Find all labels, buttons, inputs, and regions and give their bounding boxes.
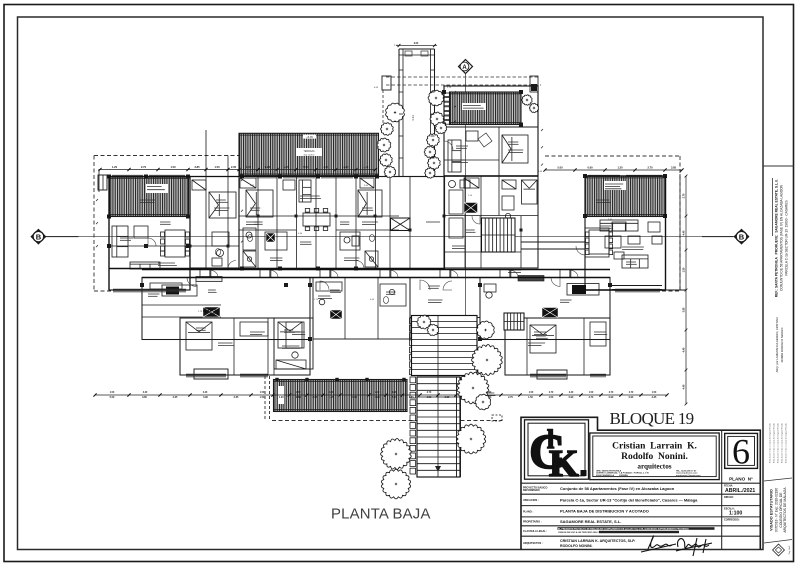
svg-text:REFORMADO:: REFORMADO: (523, 489, 540, 492)
svg-text:1.50: 1.50 (528, 396, 533, 399)
svg-text:1.50: 1.50 (468, 195, 473, 197)
svg-text:1.50: 1.50 (427, 396, 432, 399)
svg-text:Esta docum ento es copia del o: Esta docum ento es copia del original Vi… (777, 422, 780, 463)
svg-text:CORREGIDO:: CORREGIDO: (724, 518, 740, 521)
svg-text:A: A (462, 65, 467, 71)
svg-text:BLOQUE 19: BLOQUE 19 (610, 409, 694, 428)
svg-text:3.85: 3.85 (284, 165, 290, 169)
svg-text:Cristian Larrain K.: Cristian Larrain K. (612, 442, 697, 452)
svg-text:0.90: 0.90 (352, 396, 357, 399)
svg-text:arquitectos@larrain.com: arquitectos@larrain.com (676, 474, 701, 477)
svg-text:5.00: 5.00 (392, 396, 397, 399)
svg-text:3.85: 3.85 (409, 396, 414, 399)
svg-text:UBICACION :: UBICACION : (523, 499, 539, 502)
svg-text:+5.05: +5.05 (306, 135, 313, 139)
svg-text:1.20: 1.20 (617, 165, 623, 169)
svg-text:3.85: 3.85 (364, 185, 369, 187)
svg-text:2.70: 2.70 (141, 165, 147, 169)
svg-text:1.50: 1.50 (260, 392, 265, 394)
svg-text:2.35: 2.35 (231, 165, 237, 169)
svg-text:ABRIL./2021: ABRIL./2021 (725, 488, 755, 494)
svg-text:1.20: 1.20 (392, 392, 397, 394)
svg-text:SAGAMORE REAL ESTATE, S.L.: SAGAMORE REAL ESTATE, S.L. (560, 519, 621, 524)
svg-text:B: B (739, 232, 745, 241)
svg-text:2.70: 2.70 (447, 87, 452, 89)
svg-text:1.50: 1.50 (589, 392, 594, 394)
svg-text:1.50: 1.50 (214, 165, 220, 169)
svg-text:CONJUNTO DE 58 APARTAMENTOS (F: CONJUNTO DE 58 APARTAMENTOS (FASE IV) EN… (780, 184, 784, 291)
svg-text:K: K (549, 443, 579, 485)
svg-text:Sup 52.8m2: Sup 52.8m2 (304, 155, 316, 157)
svg-text:1.20: 1.20 (265, 165, 271, 169)
svg-text:4.40: 4.40 (323, 165, 329, 169)
svg-text:29680 MARBELLA ESPAÑA: 29680 MARBELLA ESPAÑA (596, 474, 628, 477)
svg-text:Conjunto de 58 Apartamentos (F: Conjunto de 58 Apartamentos (Fase IV) en… (560, 486, 675, 491)
svg-text:3.60: 3.60 (414, 43, 419, 45)
svg-text:4.40: 4.40 (143, 391, 148, 394)
svg-text:0.90: 0.90 (609, 396, 614, 399)
svg-text:4.40: 4.40 (569, 391, 574, 394)
svg-text:2.35: 2.35 (652, 396, 657, 399)
svg-text:1.20: 1.20 (279, 396, 284, 399)
svg-text:Esta docum ento es copia del o: Esta docum ento es copia del original Vi… (773, 422, 776, 463)
svg-text:4.40: 4.40 (203, 391, 208, 394)
svg-text:NONINI RODOLFO SERGIO: NONINI RODOLFO SERGIO (780, 328, 784, 363)
svg-text:1.50: 1.50 (260, 396, 265, 399)
svg-text:VISADO ESTATUTARIO: VISADO ESTATUTARIO (770, 489, 774, 531)
svg-text:CRISTIAN LARRAIN K. ARQUITECTO: CRISTIAN LARRAIN K. ARQUITECTOS, SLP. (560, 539, 635, 543)
svg-text:4.40: 4.40 (683, 230, 686, 235)
svg-text:4.40: 4.40 (683, 347, 686, 352)
svg-text:DIBUJO:: DIBUJO: (724, 496, 734, 499)
svg-text:0.90: 0.90 (246, 165, 252, 169)
svg-text:4.40: 4.40 (363, 165, 369, 169)
svg-text:Esta docum ento es copia del o: Esta docum ento es copia del original Vi… (785, 422, 788, 463)
svg-text:ARQUITECTOS DE MÁLAGA: ARQUITECTOS DE MÁLAGA (783, 487, 787, 533)
svg-text:1:100: 1:100 (729, 511, 742, 517)
svg-text:PLANO :: PLANO : (523, 510, 533, 513)
svg-text:3.85: 3.85 (343, 165, 349, 169)
svg-text:4.40: 4.40 (683, 384, 686, 389)
svg-text:5.00: 5.00 (110, 396, 115, 399)
svg-text:2.70: 2.70 (549, 392, 554, 394)
svg-text:2.70: 2.70 (508, 396, 513, 399)
svg-text:1.50: 1.50 (529, 392, 534, 394)
svg-text:Rodolfo Nonini.: Rodolfo Nonini. (621, 452, 688, 462)
svg-text:Pag 1de8: Pag 1de8 (789, 545, 791, 554)
svg-text:PLANTA BAJA: PLANTA BAJA (331, 507, 431, 523)
svg-text:1.50: 1.50 (296, 396, 301, 399)
svg-text:2.70: 2.70 (647, 165, 653, 169)
svg-text:2.35: 2.35 (445, 396, 450, 399)
svg-text:2.70: 2.70 (314, 299, 319, 301)
svg-text:REF.: SANTA PETRONILA PROMUE: REF.: SANTA PETRONILA PROMUEVE: SAGAMORE… (775, 179, 779, 297)
svg-text:Esta docum ento es copia del o: Esta docum ento es copia del original Vi… (769, 422, 772, 463)
svg-text:0.90: 0.90 (587, 165, 593, 169)
svg-text:Esta docum ento es copia del o: Esta docum ento es copia del original Vi… (781, 422, 784, 463)
svg-text:6: 6 (732, 432, 750, 472)
svg-text:PLANTA BAJA DE DISTRIBUCION Y: PLANTA BAJA DE DISTRIBUCION Y ACOTADO (560, 509, 649, 514)
svg-text:PARCELA C-1a SECTOR UR-13 296: PARCELA C-1a SECTOR UR-13 29690 - CASARE… (785, 200, 789, 275)
svg-text:EL PRESENTE PROYECTO SE REALIZ: EL PRESENTE PROYECTO SE REALIZA EN CUMPL… (558, 527, 689, 530)
svg-text:2.70: 2.70 (198, 311, 203, 313)
svg-text:1.20: 1.20 (112, 165, 118, 169)
svg-text:2.70: 2.70 (589, 396, 594, 399)
svg-text:PROPIETARIO :: PROPIETARIO : (523, 520, 542, 523)
svg-text:5.00: 5.00 (303, 165, 309, 169)
svg-text:CLAUSULA LEGAL:: CLAUSULA LEGAL: (523, 530, 547, 533)
svg-text:4.40: 4.40 (538, 171, 543, 173)
svg-text:4.43: 4.43 (411, 115, 415, 121)
svg-text:PLANO N°: PLANO N° (729, 476, 753, 481)
svg-text:1.50: 1.50 (652, 392, 657, 394)
svg-text:2.70: 2.70 (609, 392, 614, 394)
svg-text:4.40: 4.40 (374, 87, 379, 89)
svg-text:TERRAZA: TERRAZA (303, 150, 315, 153)
svg-text:COLEGIO OFICIAL DE: COLEGIO OFICIAL DE (779, 492, 783, 528)
svg-text:1.50: 1.50 (110, 392, 115, 394)
svg-text:3.85: 3.85 (683, 307, 686, 312)
svg-text:1.50: 1.50 (170, 165, 176, 169)
svg-text:Parcela C-1a, Sector UR-13 "Co: Parcela C-1a, Sector UR-13 "Cortijo del … (560, 497, 698, 502)
svg-text:0.90: 0.90 (569, 396, 574, 399)
svg-text:5.00: 5.00 (557, 165, 563, 169)
svg-text:2.70: 2.70 (629, 392, 634, 394)
svg-text:ARQUITECTOS :: ARQUITECTOS : (523, 542, 543, 545)
svg-text:3.85: 3.85 (194, 165, 200, 169)
svg-text:0.90: 0.90 (203, 396, 208, 399)
svg-text:3.85: 3.85 (671, 165, 677, 169)
svg-text:2.70: 2.70 (683, 193, 686, 198)
svg-text:3.85: 3.85 (142, 396, 147, 399)
svg-text:0.90: 0.90 (375, 396, 380, 399)
svg-text:RODOLFO NONINI.: RODOLFO NONINI. (560, 544, 593, 548)
svg-text:1.50: 1.50 (375, 392, 380, 394)
svg-text:1.50: 1.50 (683, 267, 686, 272)
svg-text:ARQ.: por LARRAIN FULGENCIO, C: ARQ.: por LARRAIN FULGENCIO, CRISTIAN (775, 318, 779, 373)
svg-text:1.20: 1.20 (329, 396, 334, 399)
svg-text:B: B (36, 232, 42, 241)
svg-text:4.40: 4.40 (370, 299, 375, 301)
svg-text:2.70: 2.70 (427, 392, 432, 394)
svg-text:4.40: 4.40 (298, 233, 303, 235)
svg-text:1.50: 1.50 (549, 396, 554, 399)
svg-text:2.35: 2.35 (173, 396, 178, 399)
svg-text:3.85: 3.85 (313, 396, 318, 399)
svg-text:2.35: 2.35 (234, 396, 239, 399)
svg-text:0.90: 0.90 (629, 396, 634, 399)
svg-text:arquitectos: arquitectos (637, 463, 671, 471)
svg-text:1.50: 1.50 (296, 392, 301, 394)
svg-text:4.40: 4.40 (329, 391, 334, 394)
